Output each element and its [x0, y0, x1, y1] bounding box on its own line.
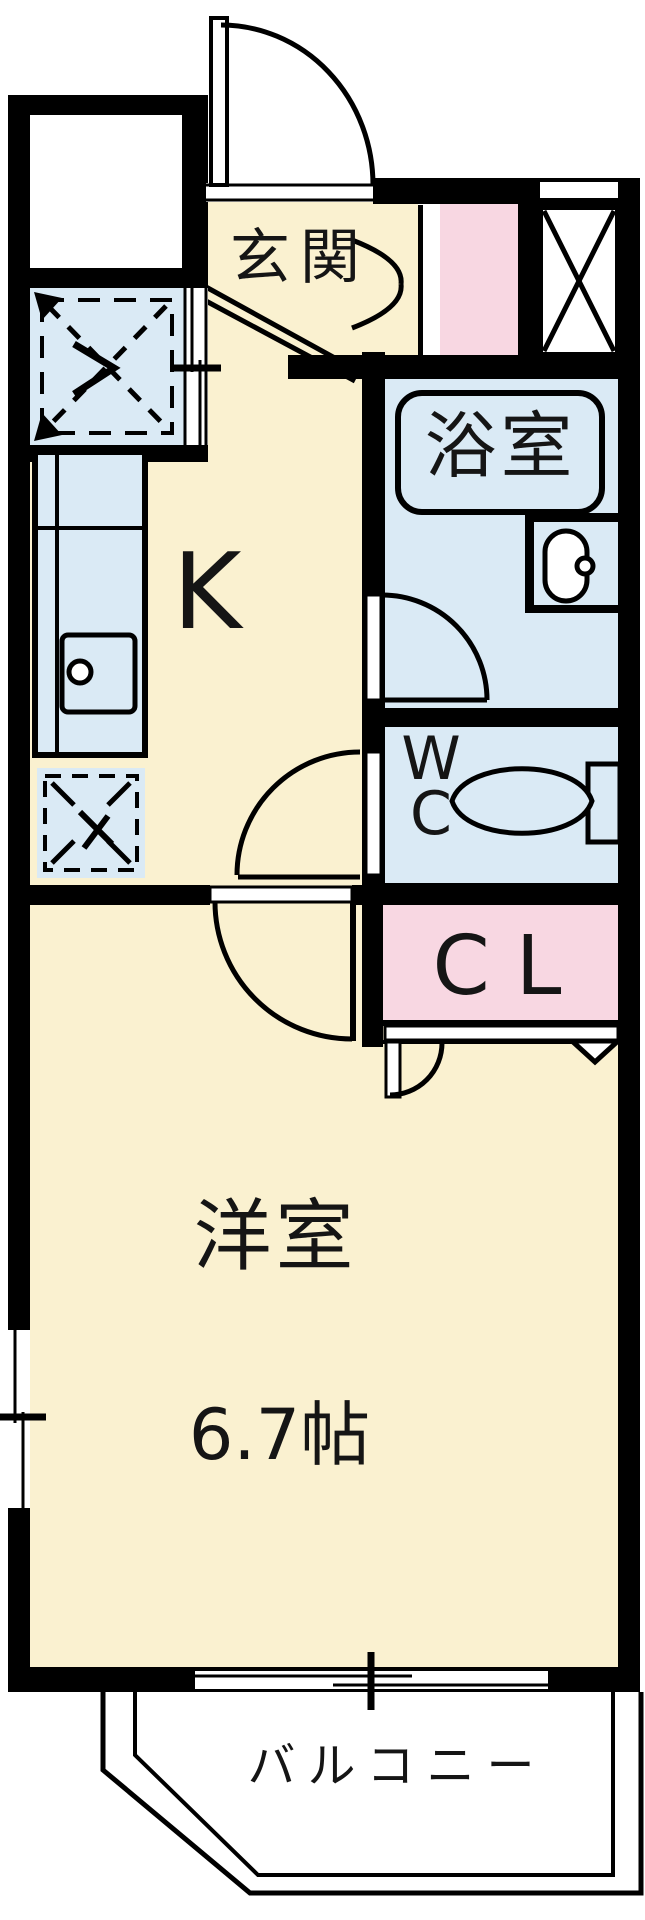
wall-basin-divider-bottom: [534, 605, 620, 613]
wall-k-west-room: [30, 885, 210, 905]
wall-left-lower: [8, 1508, 30, 1692]
shaft-lower-icon: [45, 776, 137, 870]
k-room-door-opening: [210, 887, 352, 902]
genkan-step-line-2: [206, 301, 355, 381]
bath-label: 浴室: [408, 410, 593, 482]
floor-plan: 玄関 K 浴室 W C CL 洋室 6.7帖 バルコニー: [0, 0, 645, 1920]
shaft-lower-tick-bl: [52, 841, 74, 863]
closet-small-leaf: [386, 1042, 400, 1097]
wc-door-arc: [237, 752, 360, 875]
toilet-bowl-icon: [452, 769, 592, 834]
washbasin-faucet-icon: [577, 558, 593, 574]
wall-shoebox-edge: [418, 205, 423, 357]
closet-label: CL: [420, 926, 600, 1008]
wall-utility-bottom: [8, 268, 208, 288]
wall-basin-divider-left: [525, 513, 534, 613]
wall-entry-left-stub: [182, 178, 208, 202]
wall-closet-left: [362, 905, 383, 1047]
shaft-lower-tick-tl: [52, 783, 74, 805]
kitchen-counter-icon: [35, 452, 145, 755]
western-room-label: 洋室: [158, 1198, 393, 1276]
k-room-door-icon: [210, 887, 353, 1041]
shaft-upper-icon: [34, 292, 172, 441]
bath-door-leaf: [366, 595, 381, 700]
wc-label: W C: [392, 732, 470, 842]
entrance-door-arc: [221, 25, 373, 185]
wall-wc-bottom: [362, 883, 640, 905]
balcony-label: バルコニー: [222, 1742, 572, 1790]
xbox-icon: [540, 182, 618, 355]
k-room-door-arc: [215, 902, 352, 1039]
wc-label-line2: C: [392, 787, 470, 842]
bath-door-arc: [382, 595, 487, 700]
genkan-step-line-1: [206, 287, 362, 373]
kitchen-label: K: [157, 540, 257, 645]
shaft-lower-tick-tr: [108, 783, 130, 805]
sink-faucet-icon: [69, 661, 91, 683]
wall-top-left: [8, 95, 190, 115]
closet-door-icons: [385, 1026, 618, 1097]
xbox-top-slit: [540, 182, 618, 198]
entrance-door-icon: [206, 18, 401, 381]
closet-door-front: [385, 1026, 618, 1040]
wall-right-outer: [618, 178, 640, 1692]
closet-door-notch: [572, 1041, 618, 1062]
genkan-label: 玄関: [215, 228, 385, 288]
entrance-door-leaf: [211, 18, 227, 185]
western-room-size: 6.7帖: [142, 1400, 417, 1470]
wc-door-leaf: [366, 752, 381, 875]
